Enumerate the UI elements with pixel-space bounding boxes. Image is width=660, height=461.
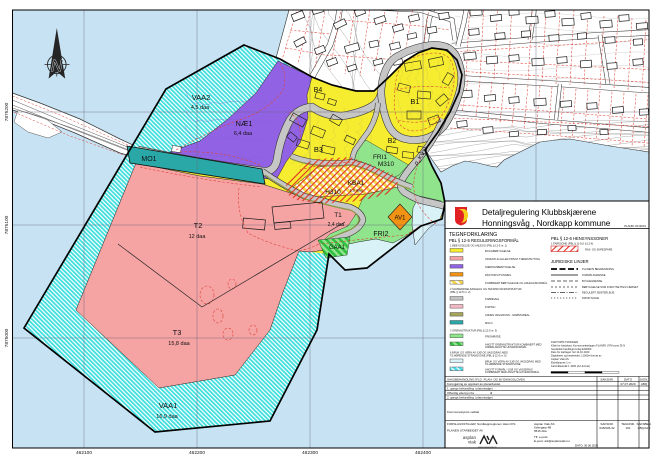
svg-text:T2: T2 [194,221,203,230]
svg-text:TILHØRENDE STRANDSONE (PBL § 1: TILHØRENDE STRANDSONE (PBL § 12-5 nr. 6) [450,354,507,358]
svg-text:15,8 daa: 15,8 daa [168,341,190,347]
svg-text:Asplan Viak AS: Asplan Viak AS [551,357,569,361]
svg-text:7875100: 7875100 [4,215,10,234]
svg-text:T3: T3 [173,328,182,337]
svg-text:til: til [490,391,493,395]
svg-text:FRISIKTLINJE: FRISIKTLINJE [582,296,599,300]
svg-text:FRI2: FRI2 [373,231,388,238]
svg-text:E-post: ark@asplanviak.no: E-post: ark@asplanviak.no [534,439,570,443]
svg-text:Honningsvåg , Nordkapp kommune: Honningsvåg , Nordkapp kommune [482,218,611,228]
svg-text:4,5 daa: 4,5 daa [191,105,210,111]
svg-text:DATO: DATO [624,377,633,381]
svg-text:VAA2: VAA2 [192,93,211,102]
svg-text:NÆRINGSBEBYGGELSE: NÆRINGSBEBYGGELSE [485,265,516,269]
svg-text:7875200: 7875200 [4,102,10,121]
svg-text:PBL § 12-6 HENSYNSSONER: PBL § 12-6 HENSYNSSONER [551,236,608,241]
svg-text:PLANENS BEGRENSNING: PLANENS BEGRENSNING [582,267,614,271]
svg-text:BOLIGBEBYGGELSE: BOLIGBEBYGGELSE [485,249,511,253]
svg-text:9515 Alta: 9515 Alta [534,429,547,433]
svg-text:FORTAU: FORTAU [485,305,496,309]
svg-text:B2: B2 [388,138,397,145]
svg-text:12 daa: 12 daa [189,234,207,240]
svg-text:REGULERT SENTERLINJE: REGULERT SENTERLINJE [582,291,615,295]
svg-text:viak: viak [468,440,477,445]
svg-text:Kommunestyrets vedtak: Kommunestyrets vedtak [447,410,480,414]
svg-text:T1: T1 [334,212,342,219]
svg-text:1 BEBYGGELSE OG ANLEGG (PBL §: 1 BEBYGGELSE OG ANLEGG (PBL § 12-5 nr. 1… [450,244,507,248]
svg-text:16,9 daa: 16,9 daa [156,414,178,420]
svg-text:MO1: MO1 [141,156,156,163]
svg-text:H310: H310 [325,189,341,196]
svg-text:SAKSBEHANDLING IFLG. PLAN- OG: SAKSBEHANDLING IFLG. PLAN- OG BYGNINGSLO… [447,377,525,381]
svg-text:07.07.2020: 07.07.2020 [620,382,635,386]
svg-text:6,4 daa: 6,4 daa [234,131,253,137]
svg-text:101: 101 [625,426,630,430]
svg-text:KBA1: KBA1 [348,180,365,187]
svg-text:Dato for kartlaget: feil 14.10: Dato for kartlaget: feil 14.10.2020 [551,350,590,354]
svg-text:BYGGEGRENSE: BYGGEGRENSE [582,279,602,283]
svg-text:NÆ1: NÆ1 [235,119,252,128]
svg-text:1. gangs behandling i planutva: 1. gangs behandling i planutvalget [447,387,493,391]
svg-text:636/636-32: 636/636-32 [599,426,615,430]
svg-text:www.asplanviak.no: www.asplanviak.no [478,447,497,449]
svg-text:OFFENTLIG ELLER PRIVAT TJENEST: OFFENTLIG ELLER PRIVAT TJENESTEYTING [485,257,540,261]
svg-text:Ekvidistanse 1 m: Ekvidistanse 1 m [551,360,571,364]
svg-text:GAA1: GAA1 [329,245,346,251]
svg-text:VAA1: VAA1 [159,401,178,410]
svg-text:DATO: 30.06.2020: DATO: 30.06.2020 [575,444,599,448]
svg-text:N: N [51,58,63,75]
svg-text:FRI1: FRI1 [373,154,387,161]
svg-text:1 FARESONE (PBL § 11-8 jf. §: 1 FARESONE (PBL § 11-8 jf. § 12-6) [551,242,593,246]
svg-text:ANNEN VEGGRUNN - GRØNTAREAL: ANNEN VEGGRUNN - GRØNTAREAL [485,313,530,317]
svg-text:Kilde for basiskart: Kommuneka: Kilde for basiskart: Kommunekartlagen FL… [551,343,625,347]
svg-text:TILHØRENDE STRANDSONE: TILHØRENDE STRANDSONE [485,362,521,366]
svg-text:Detaljregulering Klubbskjærene: Detaljregulering Klubbskjærene [482,208,597,217]
svg-text:SAKSNR.: SAKSNR. [600,377,613,381]
svg-text:(PBL § 12-5 nr. 2): (PBL § 12-5 nr. 2) [450,290,471,294]
svg-text:MOLO: MOLO [485,321,493,325]
svg-text:3 GRØNNSTRUKTUR (PBL § 12-5 n: 3 GRØNNSTRUKTUR (PBL § 12-5 nr. 3) [450,329,497,333]
svg-text:7875000: 7875000 [4,328,10,347]
svg-text:462100: 462100 [76,450,92,456]
svg-text:Geodetisk handlegrunnlag EN20: Geodetisk handlegrunnlag EN2000 [551,347,592,351]
svg-text:Kartmålestokk 1 1000 (A2-form: Kartmålestokk 1 1000 (A2-format) [551,364,590,368]
svg-text:M310: M310 [378,161,395,168]
svg-text:RAS- OG SKREDFARE: RAS- OG SKREDFARE [585,248,613,252]
svg-text:B4: B4 [314,87,323,94]
svg-text:JURIDISKE LINJER: JURIDISKE LINJER [551,259,588,264]
svg-text:PLANEN UTARBEIDET AV: PLANEN UTARBEIDET AV [447,429,483,433]
svg-text:2,4 daa: 2,4 daa [328,222,345,228]
svg-text:AV1: AV1 [395,216,407,222]
svg-text:BEBYGGELSE SOM FORUTSETTES FJE: BEBYGGELSE SOM FORUTSETTES FJERNET [582,285,639,289]
svg-text:PBL § 12-5 REGULERINGSFORMÅL: PBL § 12-5 REGULERINGSFORMÅL [449,238,520,243]
svg-text:1,9 daa: 1,9 daa [349,188,363,193]
svg-text:462300: 462300 [302,450,318,456]
svg-text:FORSLAGSSTILLER: Nordkappregi: FORSLAGSSTILLER: Nordkappregionen Havn I… [447,422,515,426]
svg-text:462200: 462200 [189,450,205,456]
svg-text:ABQ: ABQ [641,382,648,386]
svg-text:Digitalisert og bearbeidet 1:1: Digitalisert og bearbeidet 1:1000e-forma… [551,354,602,358]
svg-text:462400: 462400 [415,450,431,456]
svg-text:PLANID 2019001: PLANID 2019001 [624,224,646,228]
svg-text:2. gangs behandling i planutva: 2. gangs behandling i planutvalget [447,396,493,400]
svg-text:B3: B3 [314,145,323,154]
svg-text:KARTOPPLYSNINGER: KARTOPPLYSNINGER [551,340,578,344]
svg-text:KJØREVEG: KJØREVEG [485,297,499,301]
svg-text:SIGN.: SIGN. [640,377,648,381]
svg-text:Offentlig ettersyn fra: Offentlig ettersyn fra [447,391,474,395]
svg-text:Kunngjøring av oppstart av pla: Kunngjøring av oppstart av planarbeidet [447,382,500,386]
svg-text:B1: B1 [410,97,419,106]
svg-text:ABQ/AJD: ABQ/AJD [638,426,652,430]
